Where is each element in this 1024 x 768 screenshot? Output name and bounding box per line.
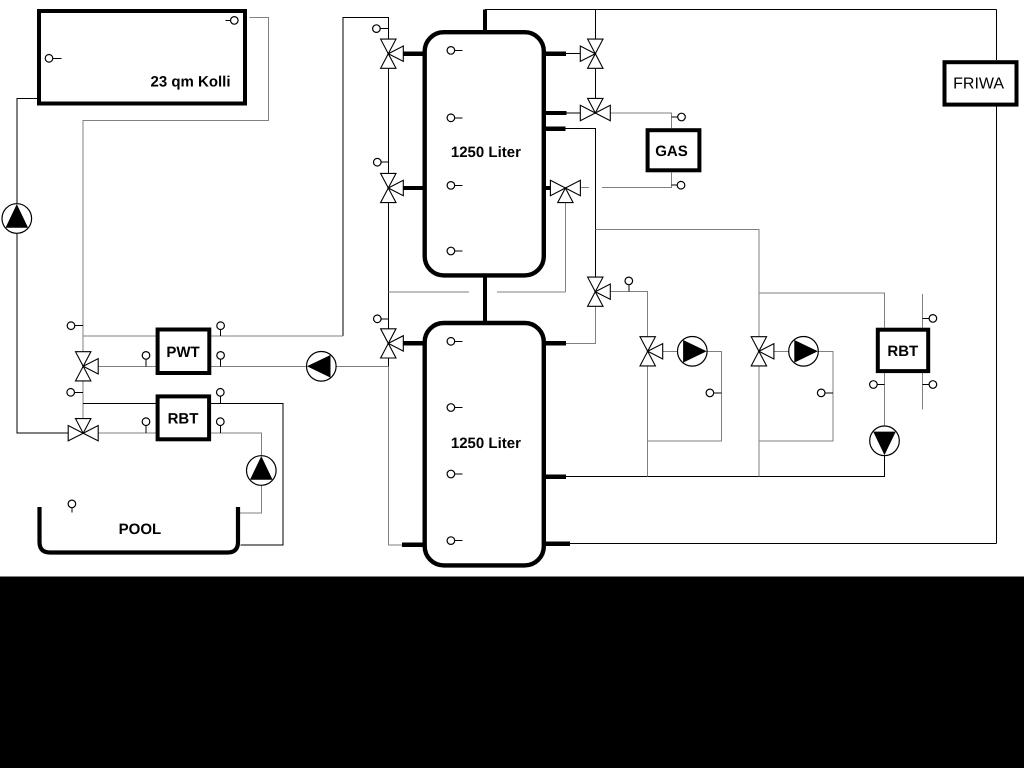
svg-text:GAS: GAS (655, 143, 688, 160)
svg-text:RBT: RBT (887, 343, 918, 360)
svg-text:POOL: POOL (119, 521, 162, 538)
svg-text:1250 Liter: 1250 Liter (451, 435, 521, 452)
svg-text:FRIWA: FRIWA (953, 76, 1004, 93)
svg-text:23 qm Kolli: 23 qm Kolli (150, 73, 230, 90)
svg-text:PWT: PWT (166, 344, 199, 361)
svg-text:1250 Liter: 1250 Liter (451, 144, 521, 161)
svg-text:RBT: RBT (168, 411, 199, 428)
